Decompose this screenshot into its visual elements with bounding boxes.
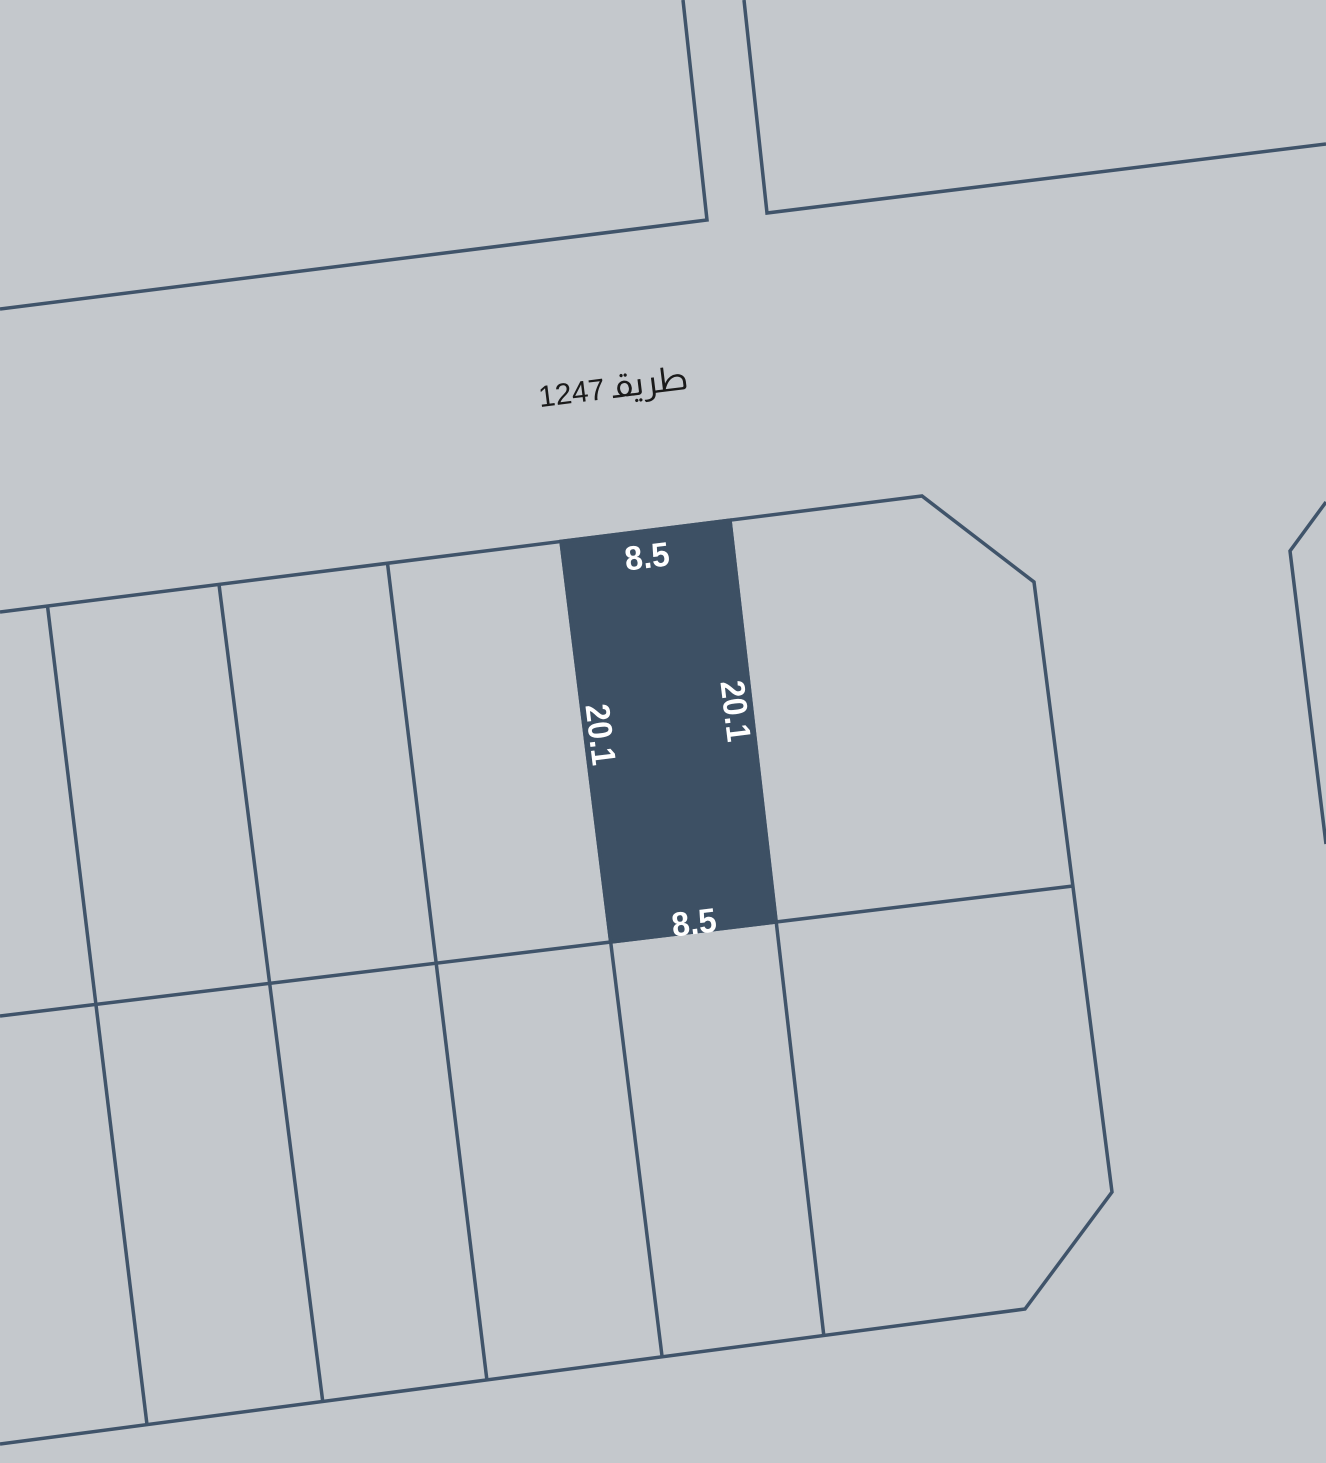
svg-text:8.5: 8.5 bbox=[670, 902, 719, 945]
svg-text:20.1: 20.1 bbox=[713, 678, 759, 744]
svg-text:20.1: 20.1 bbox=[578, 702, 624, 768]
svg-text:8.5: 8.5 bbox=[623, 536, 672, 579]
